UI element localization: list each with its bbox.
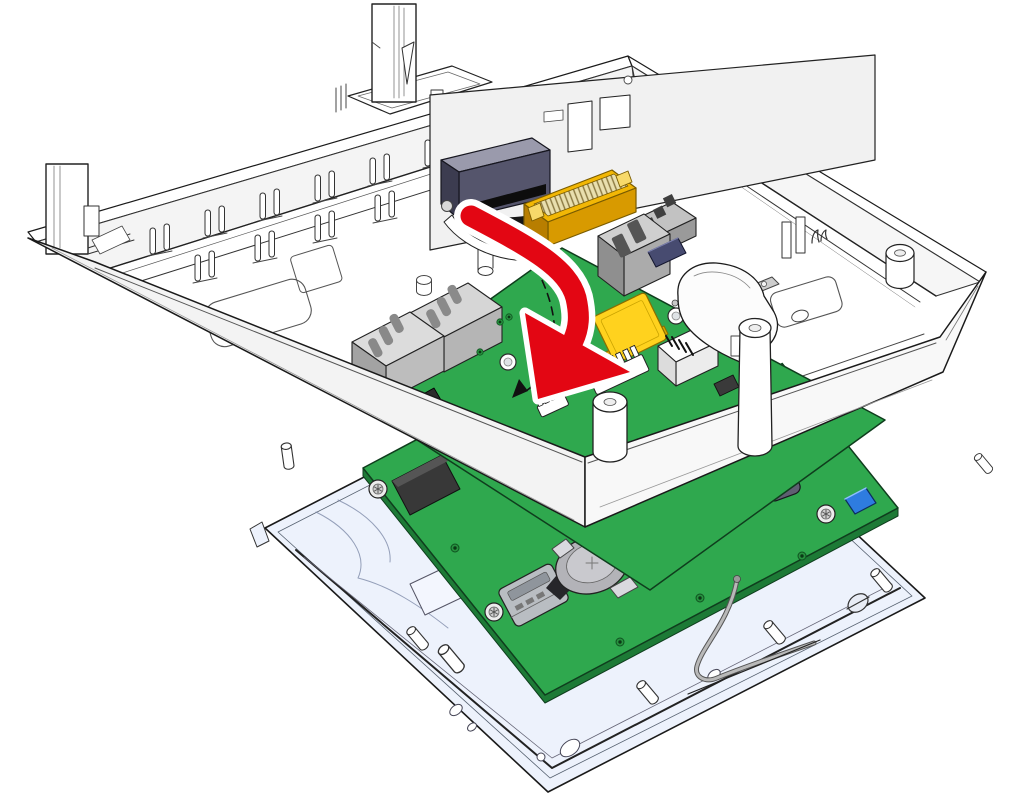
wall-post [782, 222, 791, 258]
assembly-diagram [0, 0, 1024, 798]
mounting-hole [500, 354, 516, 370]
pillar-bracket [731, 336, 740, 356]
pcb-via [696, 594, 704, 602]
wall-cutout [568, 101, 592, 152]
frame-notch [250, 522, 269, 547]
pcb-via [616, 638, 624, 646]
corner-standoff [886, 245, 914, 289]
frame-pin [281, 442, 295, 470]
torx-screw [485, 603, 503, 621]
torx-screw [369, 480, 387, 498]
pcb-via [798, 552, 806, 560]
pcb-via [477, 349, 483, 355]
floor-boss [417, 276, 432, 296]
frame-pin [973, 452, 994, 475]
wall-boss [624, 76, 632, 84]
clip-hook [84, 206, 99, 236]
wire-terminal [734, 576, 741, 583]
wall-channel-foot [478, 267, 493, 276]
pocket-ribs [336, 84, 346, 112]
corner-seam [946, 286, 978, 340]
pcb-via [451, 544, 459, 552]
wall-cutout [600, 95, 630, 130]
wall-slot [544, 110, 563, 122]
frame-round-hole [537, 753, 545, 761]
connector-boss [442, 201, 453, 212]
standoff-pillar-1 [593, 392, 627, 462]
wall-post [796, 217, 805, 253]
pcb-via [506, 314, 512, 320]
torx-screw [817, 505, 835, 523]
diagram-canvas [0, 0, 1024, 798]
pcb-via [497, 319, 503, 325]
